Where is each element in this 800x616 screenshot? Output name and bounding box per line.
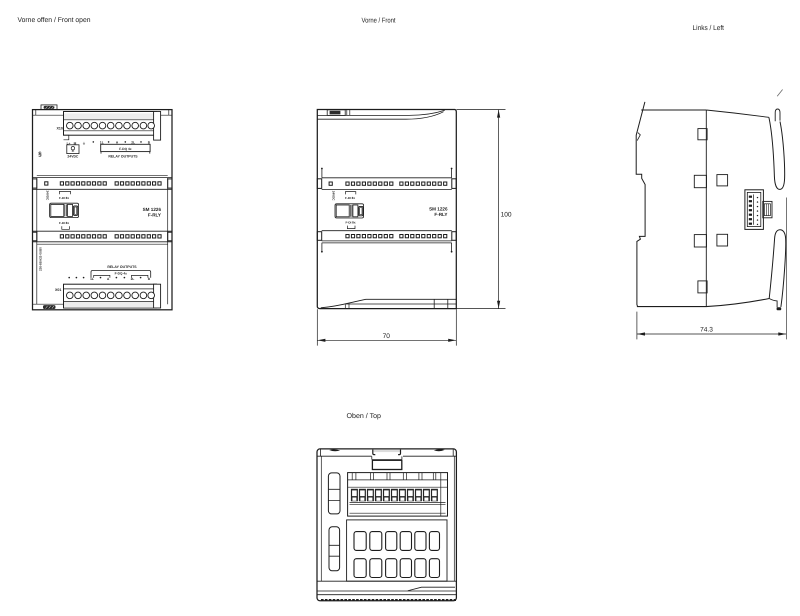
svg-text:SM 1226: SM 1226 [143, 207, 162, 212]
svg-text:2L: 2L [131, 140, 135, 144]
svg-text:2L: 2L [131, 277, 135, 281]
svg-text:74.3: 74.3 [700, 327, 713, 334]
svg-text:⏚: ⏚ [82, 142, 85, 146]
svg-text:Links / Left: Links / Left [693, 24, 725, 32]
svg-text:Oben / Top: Oben / Top [347, 412, 382, 420]
svg-text:Vorne offen / Front open: Vorne offen / Front open [18, 16, 91, 24]
svg-text:226-6BA32-0XB0: 226-6BA32-0XB0 [39, 247, 43, 271]
svg-text:F-RLY: F-RLY [148, 212, 161, 217]
svg-text:100: 100 [501, 212, 512, 219]
svg-text:70: 70 [383, 333, 391, 340]
svg-text:F-DI 8x: F-DI 8x [59, 196, 69, 200]
svg-text:24VDC: 24VDC [332, 191, 336, 202]
svg-text:F-RLY: F-RLY [434, 212, 447, 217]
svg-text:24VDC: 24VDC [46, 191, 50, 202]
svg-text:24VDC: 24VDC [67, 154, 78, 158]
svg-text:1L: 1L [90, 277, 94, 281]
svg-text:SM 1226: SM 1226 [429, 207, 448, 212]
svg-text:F-DI 8x: F-DI 8x [346, 221, 356, 225]
svg-text:X01: X01 [55, 288, 61, 292]
svg-text:X10: X10 [57, 127, 63, 131]
svg-text:F-DI 8x: F-DI 8x [345, 196, 355, 200]
svg-text:F-DQ 4x: F-DQ 4x [115, 272, 127, 276]
svg-text:§: § [38, 151, 42, 158]
svg-text:1L: 1L [100, 140, 104, 144]
svg-text:Vorne / Front: Vorne / Front [362, 17, 396, 25]
svg-text:RELAY OUTPUTS: RELAY OUTPUTS [108, 154, 138, 158]
svg-text:RELAY OUTPUTS: RELAY OUTPUTS [107, 265, 137, 269]
svg-text:F-DI 8x: F-DI 8x [59, 221, 69, 225]
svg-text:F-DQ 4x: F-DQ 4x [119, 147, 131, 151]
